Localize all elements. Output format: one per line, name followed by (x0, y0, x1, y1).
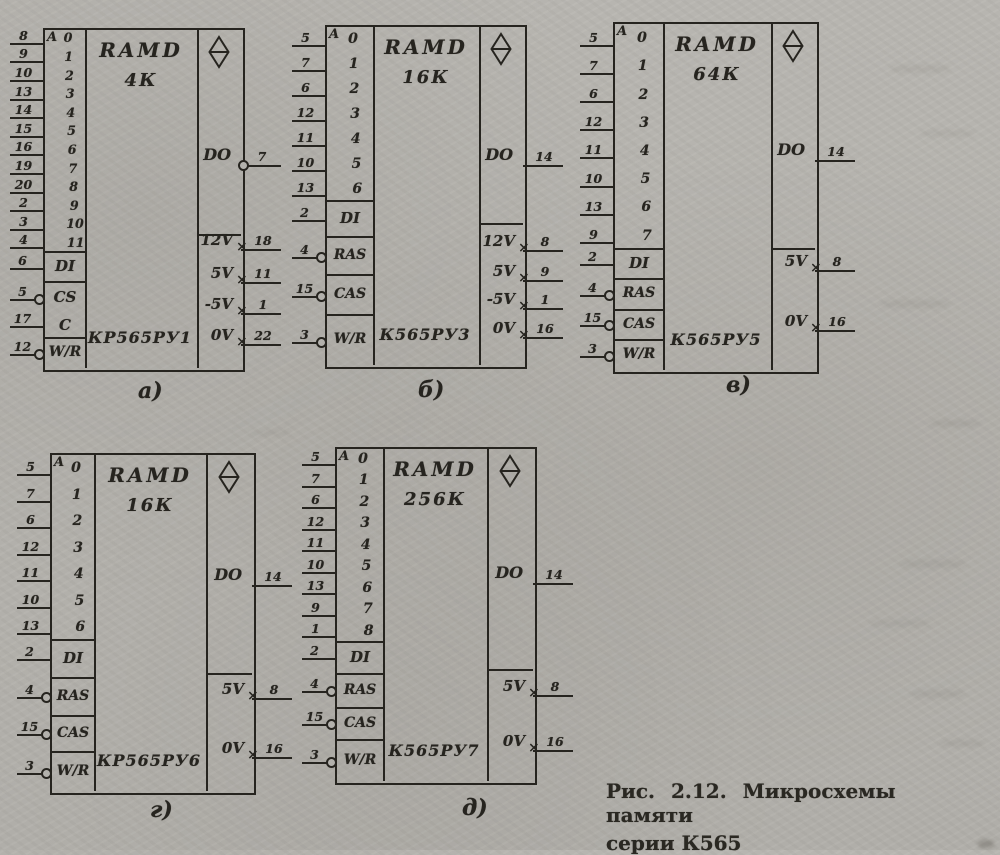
pin-number: 13 (292, 180, 319, 195)
inversion-circle-icon (316, 291, 327, 302)
control-pin-line (10, 326, 43, 328)
control-label-cas: CAS (337, 707, 383, 739)
pin-number: 4 (580, 280, 605, 295)
tristate-diamond-icon (207, 35, 231, 73)
pin-number: 6 (292, 80, 319, 95)
pin-number: 3 (580, 341, 605, 356)
control-label-di: DI (52, 639, 94, 677)
address-bit-label: 2 (346, 492, 382, 514)
inversion-circle-icon (326, 757, 337, 768)
address-pin-line (10, 117, 43, 119)
pin-number: 13 (302, 578, 329, 593)
pin-number: 8 (529, 234, 561, 249)
pin-number: 2 (10, 195, 37, 210)
address-pin-line (17, 580, 50, 582)
pin-number: 4 (10, 232, 37, 247)
subfigure-letter: в) (726, 372, 751, 398)
control-pin-line (10, 268, 43, 270)
address-bit-label: 5 (64, 588, 96, 615)
power-x-mark-icon: × (236, 273, 248, 287)
control-pin-line (17, 659, 50, 661)
power-label: 0V (489, 732, 525, 750)
control-label-ras: RAS (337, 673, 383, 707)
address-pin-line (292, 170, 325, 172)
pin-number: 1 (302, 621, 329, 636)
pin-number: 10 (17, 592, 44, 607)
pin-number: 2 (292, 205, 317, 220)
address-pin-line (17, 607, 50, 609)
pin-number: 6 (10, 253, 35, 268)
inversion-circle-icon (604, 290, 615, 301)
address-pin-line (17, 633, 50, 635)
scan-artifact (250, 430, 290, 436)
pin-number: 8 (10, 28, 37, 43)
data-out-pin-line (252, 585, 292, 587)
power-label: 5V (208, 680, 244, 698)
address-bit-label: 4 (626, 137, 664, 165)
scan-artifact (900, 560, 965, 568)
pin-number: 22 (247, 328, 279, 343)
chip-name: К565РУ5 (657, 330, 775, 349)
pin-number: 12 (580, 114, 607, 129)
pin-number: 2 (580, 249, 605, 264)
address-pin-line (302, 507, 335, 509)
pin-number: 17 (10, 311, 35, 326)
subfigure-letter: а) (138, 378, 163, 404)
power-separator (771, 248, 815, 250)
address-pin-line (292, 95, 325, 97)
power-x-mark-icon: × (518, 328, 530, 342)
inversion-circle-icon (41, 768, 52, 779)
control-label-cs: CS (45, 281, 85, 313)
scan-artifact (870, 620, 930, 627)
control-label-w-r: W/R (615, 339, 663, 370)
pin-number: 7 (580, 58, 607, 73)
address-pin-line (17, 554, 50, 556)
pin-number: 10 (302, 557, 329, 572)
chip-b: A051726312411510613DI2RAS4CAS15W/R3RAMD1… (292, 25, 563, 369)
address-pin-line (10, 61, 43, 63)
power-x-mark-icon: × (528, 741, 540, 755)
pin-number: 3 (17, 758, 42, 773)
chip-capacity-label: 4К (85, 70, 197, 91)
address-bit-label: 9 (59, 197, 89, 216)
pin-number: 6 (302, 492, 329, 507)
address-bit-label: 2 (54, 67, 84, 86)
address-bit-label: 1 (54, 48, 84, 67)
power-x-mark-icon: × (236, 240, 248, 254)
pin-number: 15 (292, 281, 317, 296)
power-label: 0V (199, 326, 233, 344)
power-label: 0V (208, 739, 244, 757)
address-pin-line (292, 195, 325, 197)
pin-number: 10 (292, 155, 319, 170)
inversion-circle-icon (316, 252, 327, 263)
control-pin-line (302, 658, 335, 660)
address-bit-label: 11 (61, 234, 91, 253)
pin-number: 5 (17, 459, 44, 474)
address-pin-line (10, 136, 43, 138)
address-bit-label: 6 (349, 578, 385, 600)
pin-number: 11 (292, 130, 319, 145)
address-bit-label: 5 (57, 122, 87, 141)
address-pin-line (580, 186, 613, 188)
pin-number: 9 (580, 227, 607, 242)
control-label-cas: CAS (52, 715, 94, 751)
subfigure-letter: б) (418, 377, 444, 403)
power-label: 0V (773, 312, 807, 330)
pin-number: 9 (529, 264, 561, 279)
power-label: 12V (199, 231, 233, 249)
address-pin-line (10, 154, 43, 156)
address-bit-label: 3 (55, 85, 85, 104)
pin-number: 15 (10, 121, 37, 136)
power-label: 5V (199, 264, 233, 282)
chip-name: К565РУ7 (377, 741, 491, 760)
power-label: -5V (481, 290, 515, 308)
pin-number: 20 (10, 177, 37, 192)
pin-number: 7 (302, 471, 329, 486)
output-column-divider (197, 28, 199, 368)
control-label-di: DI (615, 248, 663, 278)
chip-type-label: RAMD (663, 32, 771, 56)
pin-number: 4 (292, 242, 317, 257)
chip-capacity-label: 256К (383, 489, 487, 510)
chip-type-label: RAMD (85, 38, 197, 62)
pin-number: 13 (17, 618, 44, 633)
address-bit-label: 8 (59, 178, 89, 197)
address-bit-label: 4 (348, 535, 384, 557)
power-label: -5V (199, 295, 233, 313)
power-separator (487, 669, 533, 671)
address-bit-label: 5 (627, 165, 665, 193)
address-bit-label: 0 (60, 455, 92, 482)
scan-artifact (930, 420, 980, 427)
power-label: 5V (489, 677, 525, 695)
pin-number: 8 (539, 679, 571, 694)
address-bit-label: 6 (57, 141, 87, 160)
inversion-circle-icon (238, 160, 249, 171)
inversion-circle-icon (34, 294, 45, 305)
address-bit-label: 2 (61, 508, 93, 535)
address-bit-label: 8 (351, 621, 387, 643)
address-bit-label: 6 (339, 177, 375, 202)
address-bit-label: 7 (628, 222, 666, 250)
address-bit-label: 7 (350, 599, 386, 621)
figure-2-12: Рис. 2.12. Микросхемы памяти серии К565 … (0, 0, 1000, 850)
chip-name: КР565РУ6 (88, 751, 210, 770)
tristate-diamond-icon (217, 460, 241, 498)
address-bit-label: 6 (627, 193, 665, 221)
address-bit-label: 1 (61, 482, 93, 509)
address-bit-label: 4 (338, 127, 374, 152)
pin-number: 12 (17, 539, 44, 554)
power-x-mark-icon: × (528, 686, 540, 700)
power-x-mark-icon: × (247, 748, 259, 762)
power-x-mark-icon: × (236, 335, 248, 349)
address-pin-line (10, 247, 43, 249)
address-pin-line (292, 145, 325, 147)
pin-number: 15 (580, 310, 605, 325)
pin-number: 16 (10, 139, 37, 154)
pin-number: 5 (580, 30, 607, 45)
address-pin-line (292, 70, 325, 72)
inversion-circle-icon (604, 351, 615, 362)
tristate-diamond-icon (498, 454, 522, 492)
address-pin-line (10, 173, 43, 175)
address-bit-label: 4 (63, 561, 95, 588)
address-pin-line (302, 593, 335, 595)
address-bit-label: 3 (62, 535, 94, 562)
chip-type-label: RAMD (373, 35, 479, 59)
pin-number: 10 (580, 171, 607, 186)
address-pin-line (10, 99, 43, 101)
power-x-mark-icon: × (810, 321, 822, 335)
address-pin-line (17, 474, 50, 476)
chip-capacity-label: 16К (373, 67, 479, 88)
pin-number: 11 (580, 142, 607, 157)
data-out-pin-line (815, 160, 855, 162)
control-pin-line (580, 264, 613, 266)
pin-number: 6 (580, 86, 607, 101)
control-label-cas: CAS (615, 309, 663, 339)
data-out-label: DO (481, 145, 513, 164)
tristate-diamond-icon (489, 32, 513, 70)
address-bit-label: 5 (349, 556, 385, 578)
address-bit-label: 0 (53, 29, 83, 48)
data-out-label: DO (208, 565, 242, 584)
power-label: 0V (481, 319, 515, 337)
address-pin-line (302, 550, 335, 552)
pin-number: 15 (17, 719, 42, 734)
control-pin-line (292, 220, 325, 222)
data-out-pin-line (533, 583, 573, 585)
control-label-ras: RAS (327, 236, 373, 274)
address-pin-line (302, 636, 335, 638)
pin-number: 5 (302, 449, 329, 464)
address-pin-line (302, 486, 335, 488)
address-pin-line (580, 214, 613, 216)
pin-number: 12 (302, 514, 329, 529)
address-bit-label: 0 (623, 24, 661, 52)
address-pin-line (302, 615, 335, 617)
address-bit-label: 10 (60, 215, 90, 234)
address-pin-line (580, 157, 613, 159)
chip-a: A081921031341451561671982092103114DI6CS5… (10, 28, 281, 372)
data-out-label: DO (489, 563, 523, 582)
address-pin-line (580, 45, 613, 47)
address-bit-label: 3 (347, 513, 383, 535)
chip-capacity-label: 64К (663, 64, 771, 85)
address-bit-label: 3 (337, 102, 373, 127)
scan-artifact (890, 65, 950, 73)
address-bit-label: 6 (64, 614, 96, 641)
address-pin-line (10, 192, 43, 194)
address-pin-line (10, 43, 43, 45)
chip-e: A0517263124115106137981DI2RAS4CAS15W/R3R… (302, 447, 573, 785)
caption-line2: серии К565 (606, 831, 998, 855)
chip-name: К565РУ3 (367, 325, 483, 344)
chip-type-label: RAMD (383, 457, 487, 481)
pin-number: 11 (302, 535, 329, 550)
scan-artifact (940, 740, 985, 747)
chip-d: A051726312411510613DI2RAS4CAS15W/R3RAMD1… (17, 453, 292, 795)
control-label-di: DI (45, 251, 85, 281)
pin-number: 12 (10, 339, 35, 354)
address-bit-label: 1 (336, 52, 372, 77)
pin-number: 7 (245, 149, 279, 164)
pin-number: 7 (17, 486, 44, 501)
address-pin-line (17, 527, 50, 529)
address-bit-label: 0 (335, 27, 371, 52)
data-out-label: DO (773, 140, 805, 159)
caption-line1: Рис. 2.12. Микросхемы памяти (606, 779, 998, 827)
control-label-di: DI (327, 200, 373, 236)
address-pin-line (10, 80, 43, 82)
subfigure-letter: д) (462, 795, 488, 821)
address-pin-line (580, 101, 613, 103)
pin-number: 16 (529, 321, 561, 336)
pin-number: 15 (302, 709, 327, 724)
address-pin-line (580, 73, 613, 75)
pin-number: 14 (537, 567, 571, 582)
pin-number: 1 (247, 297, 279, 312)
pin-number: 10 (10, 65, 37, 80)
tristate-diamond-icon (781, 29, 805, 67)
power-x-mark-icon: × (236, 304, 248, 318)
power-x-mark-icon: × (247, 689, 259, 703)
chip-type-label: RAMD (94, 463, 206, 487)
address-pin-line (17, 501, 50, 503)
figure-caption: Рис. 2.12. Микросхемы памяти серии К565 (606, 779, 998, 855)
pin-number: 8 (258, 682, 290, 697)
pin-number: 18 (247, 233, 279, 248)
pin-number: 1 (529, 292, 561, 307)
pin-number: 12 (292, 105, 319, 120)
pin-number: 4 (302, 676, 327, 691)
pin-number: 16 (258, 741, 290, 756)
chip-c: A05172631241151061379DI2RAS4CAS15W/R3RAM… (580, 22, 855, 374)
power-label: 5V (481, 262, 515, 280)
pin-number: 3 (10, 214, 37, 229)
pin-number: 6 (17, 512, 44, 527)
scan-artifact (978, 840, 994, 848)
control-label-ras: RAS (52, 677, 94, 715)
address-bit-label: 0 (345, 449, 381, 471)
address-pin-line (10, 229, 43, 231)
address-bit-label: 7 (58, 160, 88, 179)
chip-name: КР565РУ1 (79, 328, 201, 347)
control-label-di: DI (337, 641, 383, 673)
address-bit-label: 5 (339, 152, 375, 177)
data-out-label: DO (199, 145, 231, 164)
address-bit-label: 4 (56, 104, 86, 123)
address-pin-line (10, 210, 43, 212)
data-out-pin-line (523, 165, 563, 167)
scan-artifact (880, 300, 950, 308)
address-pin-line (302, 529, 335, 531)
address-pin-line (580, 129, 613, 131)
scan-artifact (910, 690, 965, 698)
address-bit-label: 1 (624, 52, 662, 80)
inversion-circle-icon (316, 337, 327, 348)
power-separator (206, 673, 252, 675)
pin-number: 3 (292, 327, 317, 342)
power-separator (479, 223, 523, 225)
power-label: 12V (481, 232, 515, 250)
pin-number: 14 (527, 149, 561, 164)
address-pin-line (302, 464, 335, 466)
pin-number: 16 (539, 734, 571, 749)
address-bit-label: 2 (624, 81, 662, 109)
pin-number: 8 (821, 254, 853, 269)
power-x-mark-icon: × (518, 271, 530, 285)
power-x-mark-icon: × (518, 299, 530, 313)
pin-number: 7 (292, 55, 319, 70)
address-pin-line (292, 45, 325, 47)
pin-number: 13 (580, 199, 607, 214)
scan-artifact (920, 130, 975, 137)
control-label-ras: RAS (615, 278, 663, 309)
pin-number: 5 (292, 30, 319, 45)
address-bit-label: 2 (336, 77, 372, 102)
pin-number: 14 (819, 144, 853, 159)
output-column-divider (487, 447, 489, 781)
pin-number: 9 (302, 600, 329, 615)
pin-number: 14 (256, 569, 290, 584)
pin-number: 2 (17, 644, 42, 659)
pin-number: 16 (821, 314, 853, 329)
power-label: 5V (773, 252, 807, 270)
power-x-mark-icon: × (810, 261, 822, 275)
address-pin-line (580, 242, 613, 244)
pin-number: 5 (10, 284, 35, 299)
address-pin-line (292, 120, 325, 122)
pin-number: 9 (10, 46, 37, 61)
address-bit-label: 3 (625, 109, 663, 137)
address-bit-label: 1 (346, 470, 382, 492)
pin-number: 11 (247, 266, 279, 281)
pin-number: 3 (302, 747, 327, 762)
pin-number: 2 (302, 643, 327, 658)
control-label-cas: CAS (327, 274, 373, 314)
power-x-mark-icon: × (518, 241, 530, 255)
pin-number: 11 (17, 565, 44, 580)
pin-number: 19 (10, 158, 37, 173)
pin-number: 14 (10, 102, 37, 117)
address-pin-line (302, 572, 335, 574)
pin-number: 4 (17, 682, 42, 697)
subfigure-letter: г) (150, 797, 173, 823)
output-column-divider (479, 25, 481, 365)
pin-number: 13 (10, 84, 37, 99)
chip-capacity-label: 16К (94, 495, 206, 516)
